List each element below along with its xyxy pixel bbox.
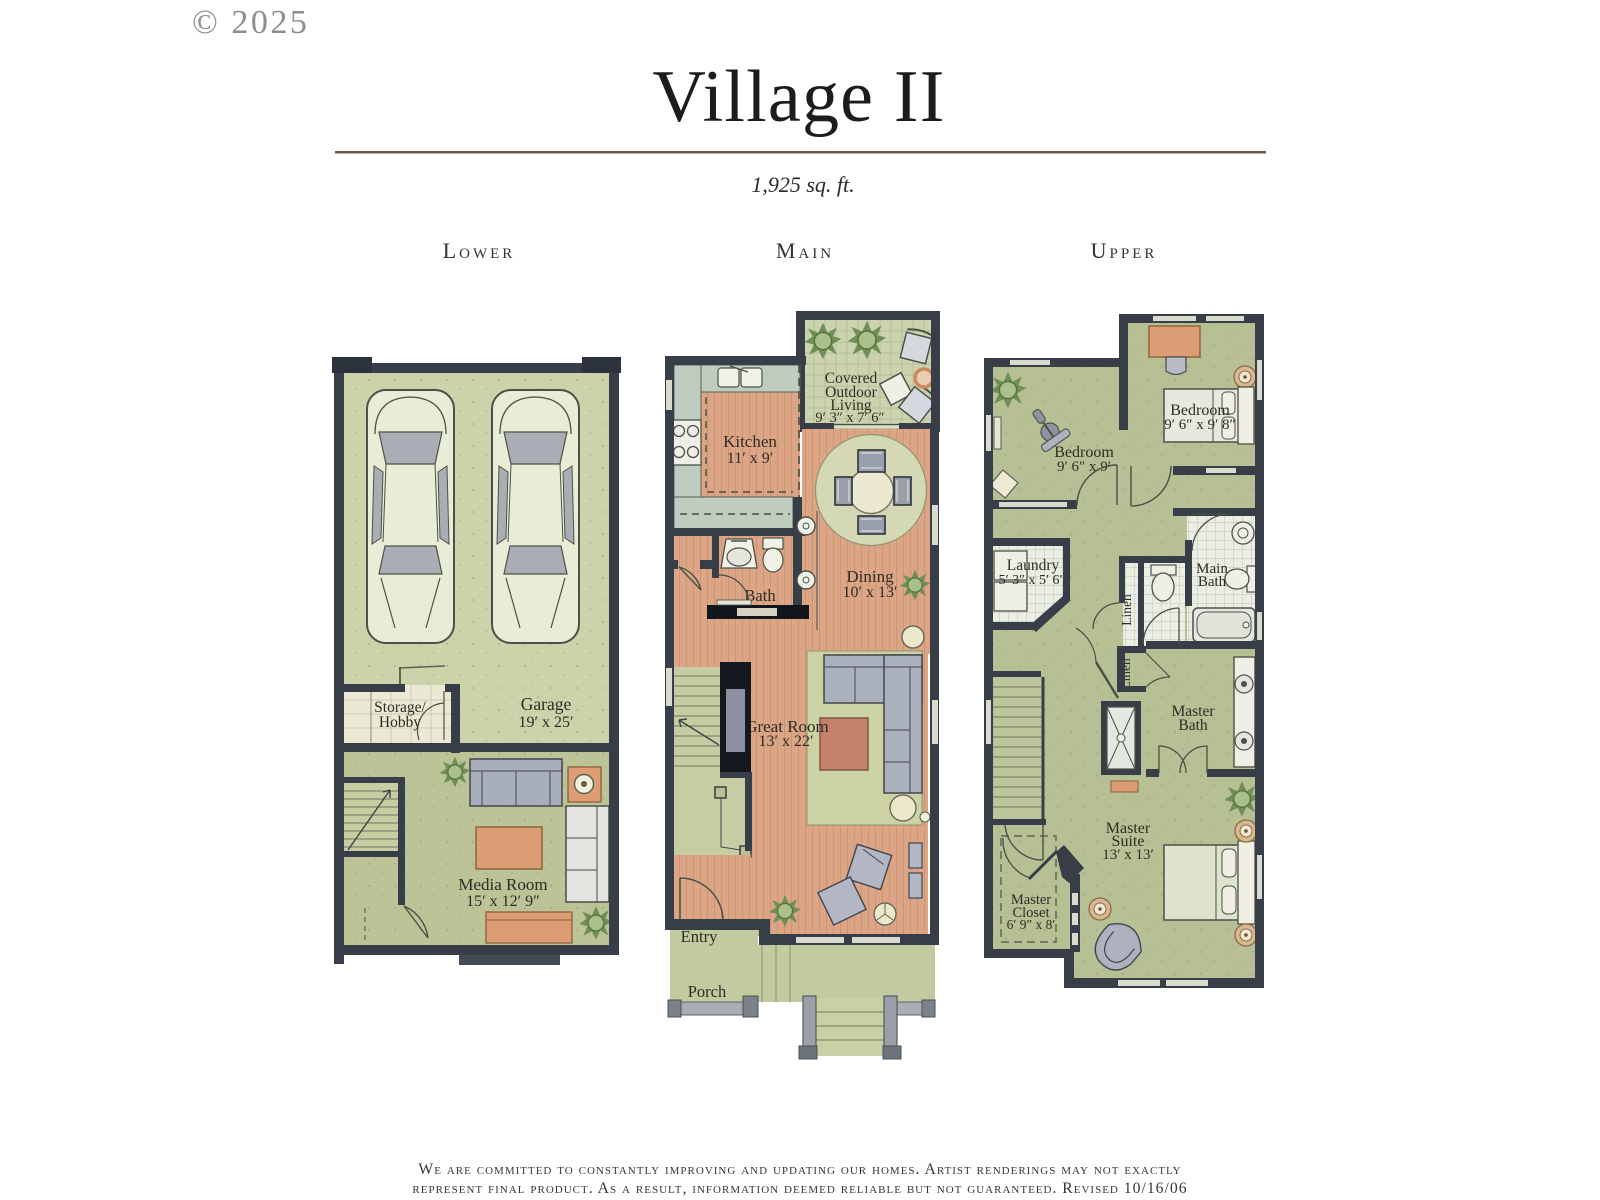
- svg-text:Bath: Bath: [1178, 717, 1208, 734]
- svg-text:Lower: Lower: [443, 238, 516, 263]
- svg-text:Village II: Village II: [652, 56, 945, 138]
- svg-text:Main: Main: [776, 238, 834, 263]
- svg-text:Hobby: Hobby: [379, 714, 421, 731]
- svg-text:15′ x 12′ 9″: 15′ x 12′ 9″: [466, 893, 540, 910]
- svg-text:11′ x 9′: 11′ x 9′: [727, 450, 773, 467]
- svg-text:13′ x 22′: 13′ x 22′: [759, 733, 814, 750]
- svg-text:Bath: Bath: [1198, 574, 1227, 590]
- svg-text:Upper: Upper: [1091, 238, 1158, 263]
- svg-text:© 2025: © 2025: [192, 4, 309, 41]
- svg-text:Media Room: Media Room: [458, 875, 547, 894]
- svg-text:Garage: Garage: [521, 694, 572, 714]
- svg-text:9′ 3″ x 7′ 6″: 9′ 3″ x 7′ 6″: [815, 410, 884, 426]
- svg-text:10′ x 13′: 10′ x 13′: [843, 584, 898, 601]
- svg-text:We are committed to constantly: We are committed to constantly improving…: [418, 1161, 1181, 1178]
- svg-text:Entry: Entry: [681, 927, 718, 946]
- svg-text:Laundry: Laundry: [1007, 557, 1060, 574]
- svg-text:Kitchen: Kitchen: [723, 432, 777, 451]
- svg-text:5′ 3″ x 5′ 6″: 5′ 3″ x 5′ 6″: [999, 573, 1066, 588]
- svg-text:Porch: Porch: [688, 982, 727, 1001]
- svg-text:6′ 9″ x 8′: 6′ 9″ x 8′: [1007, 917, 1056, 932]
- svg-text:1,925 sq. ft.: 1,925 sq. ft.: [751, 172, 854, 197]
- svg-text:19′ x 25′: 19′ x 25′: [519, 714, 574, 731]
- svg-text:13′ x 13′: 13′ x 13′: [1102, 847, 1154, 863]
- svg-text:9′ 6″ x 9′ 8″: 9′ 6″ x 9′ 8″: [1164, 417, 1236, 433]
- svg-text:represent final product. As a: represent final product. As a result, in…: [412, 1180, 1187, 1197]
